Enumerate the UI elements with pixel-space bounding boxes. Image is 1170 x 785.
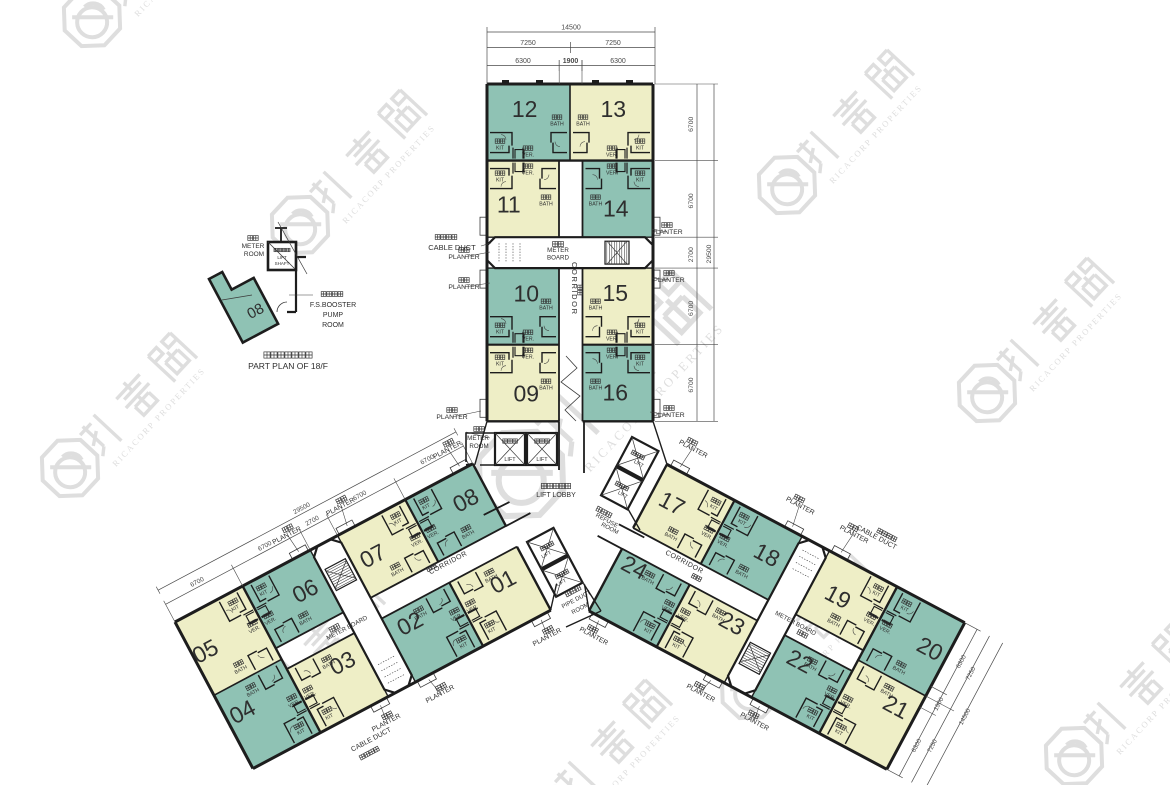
- svg-text:10: 10: [514, 280, 540, 306]
- svg-text:15: 15: [603, 280, 629, 306]
- svg-text:KIT: KIT: [496, 330, 505, 336]
- svg-text:7250: 7250: [520, 40, 536, 47]
- svg-text:VER.: VER.: [522, 355, 534, 361]
- svg-text:BOARD: BOARD: [547, 255, 570, 262]
- svg-text:PLANTER: PLANTER: [436, 414, 467, 421]
- svg-text:LIFT: LIFT: [504, 457, 516, 463]
- svg-text:BATH: BATH: [576, 121, 590, 127]
- svg-text:6300: 6300: [610, 58, 626, 65]
- svg-text:VER.: VER.: [606, 355, 618, 361]
- svg-text:6300: 6300: [515, 58, 531, 65]
- svg-text:VER.: VER.: [606, 170, 618, 176]
- svg-text:VER.: VER.: [606, 337, 618, 343]
- svg-text:VER.: VER.: [606, 152, 618, 158]
- svg-text:LIFT LOBBY: LIFT LOBBY: [536, 492, 576, 499]
- svg-text:PART PLAN OF 18/F: PART PLAN OF 18/F: [248, 361, 328, 371]
- svg-text:METER: METER: [242, 243, 265, 250]
- svg-text:BATH: BATH: [539, 201, 553, 207]
- svg-text:PLANTER: PLANTER: [653, 412, 684, 419]
- svg-text:16: 16: [603, 379, 629, 405]
- svg-text:PUMP: PUMP: [323, 312, 344, 319]
- svg-text:7250: 7250: [605, 40, 621, 47]
- svg-text:BATH: BATH: [589, 201, 603, 207]
- svg-text:29500: 29500: [706, 244, 713, 263]
- svg-text:BATH: BATH: [539, 306, 553, 312]
- svg-text:2700: 2700: [688, 247, 695, 262]
- svg-text:KIT: KIT: [636, 145, 645, 151]
- svg-text:12: 12: [512, 96, 538, 122]
- svg-text:09: 09: [514, 380, 540, 406]
- svg-text:KIT: KIT: [496, 177, 505, 183]
- svg-text:BATH: BATH: [539, 386, 553, 392]
- svg-text:14: 14: [603, 195, 629, 221]
- svg-text:PLANTER: PLANTER: [651, 229, 682, 236]
- svg-text:VER.: VER.: [522, 337, 534, 343]
- svg-text:PLANTER: PLANTER: [448, 284, 479, 291]
- svg-text:KIT: KIT: [636, 177, 645, 183]
- svg-text:KIT: KIT: [636, 330, 645, 336]
- svg-text:METER: METER: [547, 247, 569, 254]
- svg-text:METER: METER: [467, 435, 489, 442]
- svg-text:6700: 6700: [688, 377, 695, 392]
- svg-text:KIT: KIT: [496, 362, 505, 368]
- svg-text:KIT: KIT: [496, 145, 505, 151]
- svg-text:6700: 6700: [688, 117, 695, 132]
- svg-text:14500: 14500: [561, 25, 581, 32]
- svg-text:BATH: BATH: [589, 386, 603, 392]
- svg-text:11: 11: [497, 192, 521, 218]
- svg-text:PLANTER: PLANTER: [653, 277, 684, 284]
- svg-text:F.S.BOOSTER: F.S.BOOSTER: [310, 302, 356, 309]
- svg-text:6700: 6700: [688, 193, 695, 208]
- svg-text:CABLE DUCT: CABLE DUCT: [428, 243, 476, 252]
- svg-text:ROOM: ROOM: [244, 251, 264, 258]
- svg-text:BATH: BATH: [589, 306, 603, 312]
- svg-text:ROOM: ROOM: [322, 322, 344, 329]
- svg-text:6700: 6700: [688, 301, 695, 316]
- svg-text:SHAFT: SHAFT: [275, 261, 290, 266]
- svg-text:BATH: BATH: [550, 121, 564, 127]
- svg-text:VER.: VER.: [522, 152, 534, 158]
- svg-text:PLANTER: PLANTER: [448, 254, 479, 261]
- svg-text:LIFT: LIFT: [277, 255, 287, 260]
- svg-text:LIFT: LIFT: [536, 457, 548, 463]
- svg-text:13: 13: [601, 96, 627, 122]
- svg-text:KIT: KIT: [636, 362, 645, 368]
- svg-text:VER.: VER.: [522, 170, 534, 176]
- svg-text:1900: 1900: [563, 58, 579, 65]
